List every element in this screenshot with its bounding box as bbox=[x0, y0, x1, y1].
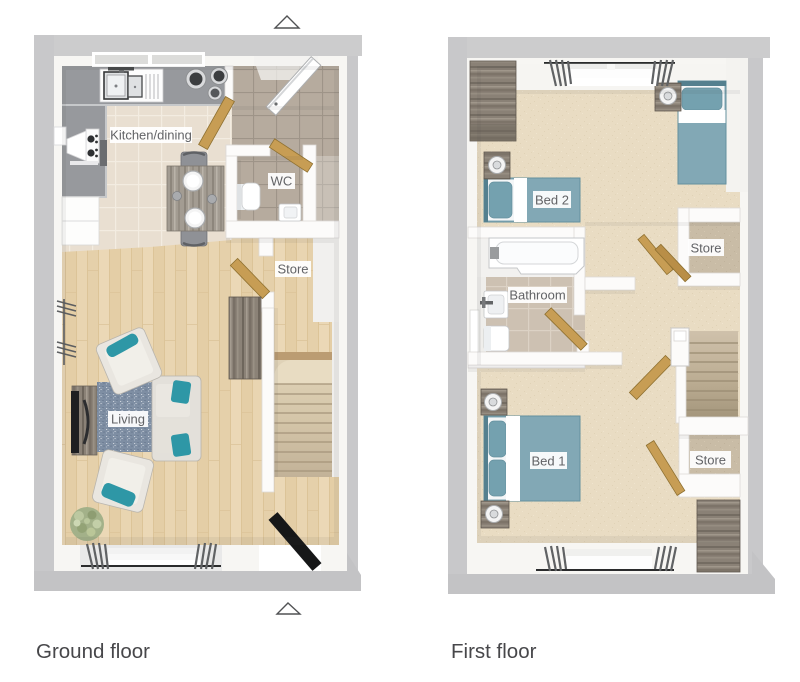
svg-text:Store: Store bbox=[277, 262, 308, 277]
svg-text:Bed 2: Bed 2 bbox=[535, 193, 569, 208]
svg-text:Bed 1: Bed 1 bbox=[532, 454, 566, 469]
svg-text:Kitchen/dining: Kitchen/dining bbox=[110, 128, 192, 143]
svg-text:Store: Store bbox=[690, 241, 721, 256]
svg-text:Store: Store bbox=[695, 453, 726, 468]
svg-text:Ground floor: Ground floor bbox=[36, 640, 150, 663]
svg-text:Bathroom: Bathroom bbox=[509, 288, 565, 303]
svg-text:First floor: First floor bbox=[451, 640, 537, 663]
svg-text:Living: Living bbox=[111, 412, 145, 427]
svg-text:WC: WC bbox=[271, 174, 293, 189]
